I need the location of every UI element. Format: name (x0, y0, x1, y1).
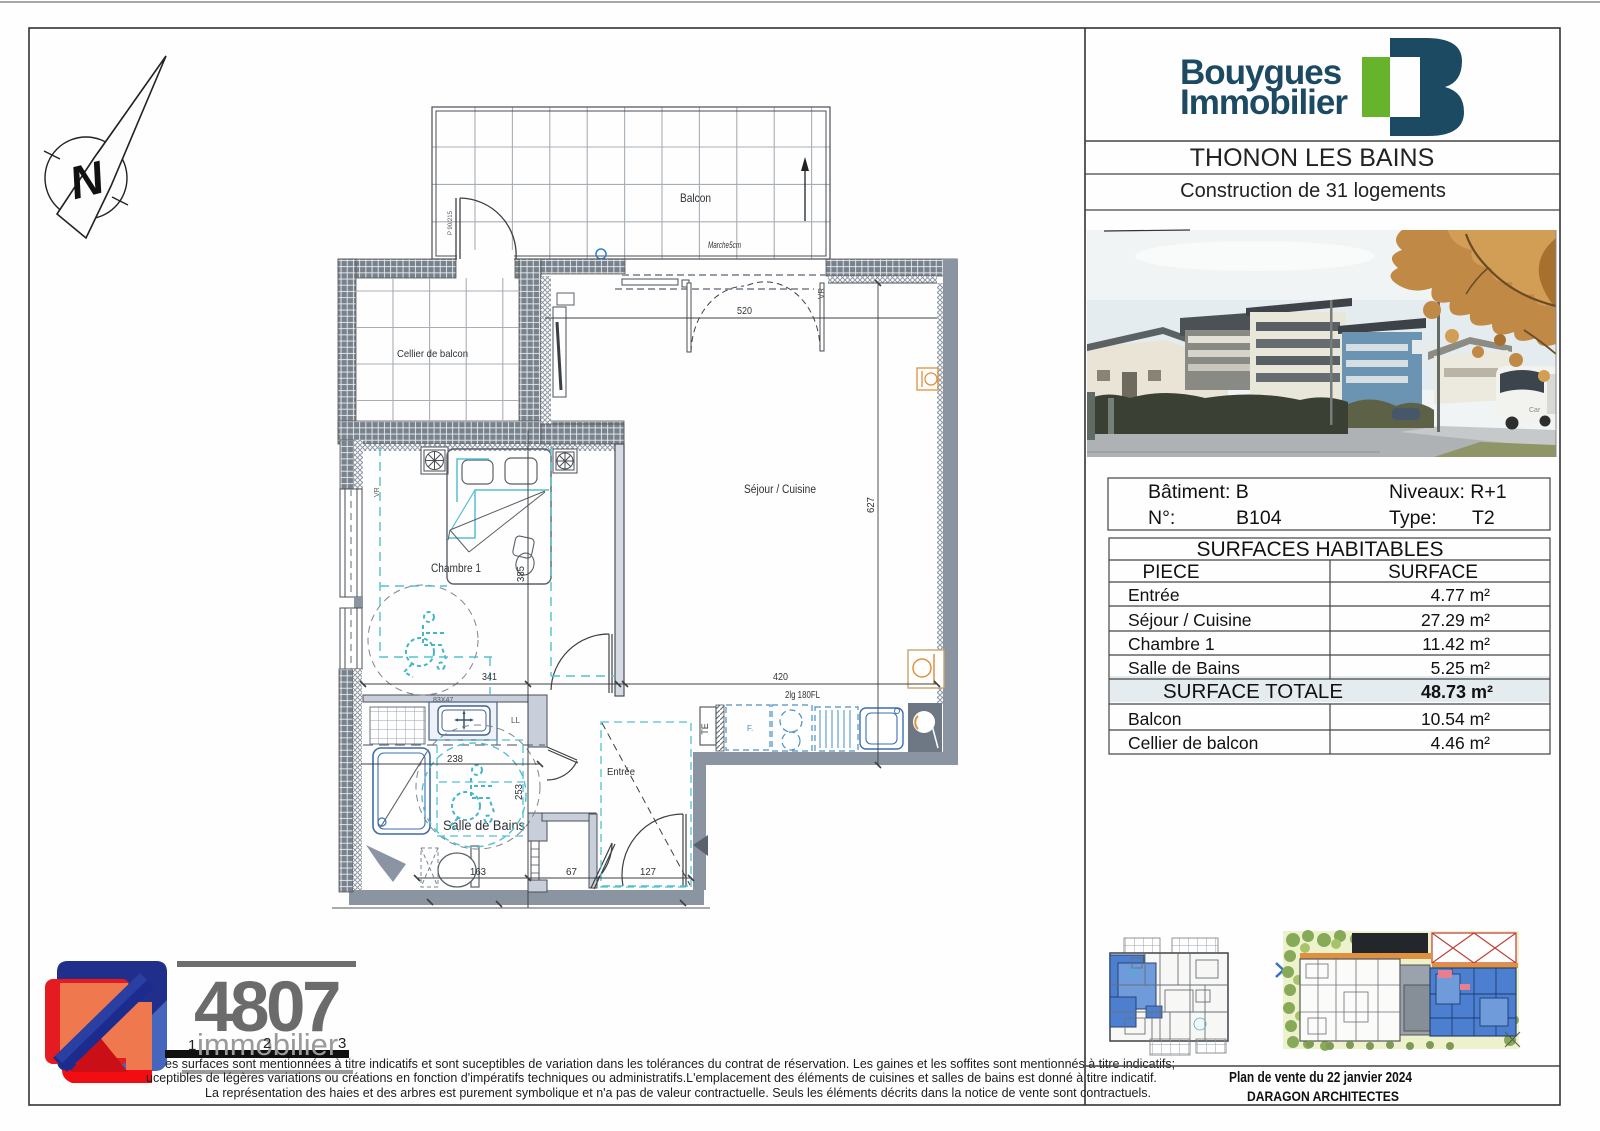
svg-text:127: 127 (640, 866, 656, 878)
svg-text:B104: B104 (1236, 507, 1282, 529)
svg-text:Chambre 1: Chambre 1 (1128, 634, 1215, 654)
svg-text:341: 341 (482, 671, 497, 683)
svg-text:385: 385 (515, 566, 527, 582)
svg-text:SURFACE TOTALE: SURFACE TOTALE (1163, 680, 1343, 703)
svg-text:48.73 m²: 48.73 m² (1421, 682, 1493, 702)
svg-text:10.54 m²: 10.54 m² (1421, 709, 1490, 729)
svg-text:4.46 m²: 4.46 m² (1431, 733, 1490, 753)
svg-text:P 90/215: P 90/215 (448, 210, 454, 235)
svg-text:VR: VR (817, 288, 826, 299)
svg-text:420: 420 (773, 671, 788, 683)
svg-text:3: 3 (338, 1035, 346, 1052)
svg-text:es surfaces sont mentionnées à: es surfaces sont mentionnées à titre ind… (165, 1057, 1175, 1071)
svg-text:4.77 m²: 4.77 m² (1431, 585, 1490, 605)
svg-text:67: 67 (566, 866, 577, 878)
svg-text:Cellier de balcon: Cellier de balcon (1128, 733, 1258, 753)
svg-text:1: 1 (188, 1037, 196, 1054)
svg-text:Séjour / Cuisine: Séjour / Cuisine (744, 484, 816, 496)
svg-text:Car: Car (1529, 407, 1541, 414)
svg-text:N°:: N°: (1148, 507, 1175, 529)
svg-text:SURFACES HABITABLES: SURFACES HABITABLES (1196, 538, 1443, 561)
svg-text:PIECE: PIECE (1142, 562, 1199, 583)
svg-text:Bâtiment: B: Bâtiment: B (1148, 481, 1249, 503)
svg-text:253: 253 (513, 784, 525, 800)
svg-text:11.42 m²: 11.42 m² (1422, 634, 1490, 654)
svg-text:Balcon: Balcon (680, 191, 711, 205)
svg-text:Plan de vente du 22 janvier 20: Plan de vente du 22 janvier 2024 (1229, 1070, 1412, 1086)
svg-text:Type:: Type: (1389, 507, 1437, 529)
svg-text:5.25 m²: 5.25 m² (1431, 658, 1490, 678)
svg-text:Marche5cm: Marche5cm (708, 240, 741, 250)
svg-text:627: 627 (865, 497, 877, 513)
svg-text:Immobilier: Immobilier (1180, 83, 1348, 122)
svg-text:THONON LES BAINS: THONON LES BAINS (1190, 144, 1435, 172)
svg-text:TE: TE (700, 723, 710, 735)
svg-text:Séjour / Cuisine: Séjour / Cuisine (1128, 610, 1252, 630)
svg-text:Construction de 31 logements: Construction de 31 logements (1180, 180, 1446, 202)
svg-text:F.: F. (747, 724, 753, 733)
svg-text:27.29 m²: 27.29 m² (1421, 610, 1490, 630)
svg-text:Salle de Bains: Salle de Bains (1128, 658, 1240, 678)
svg-text:uceptibles de légères variatio: uceptibles de légères variations ou créa… (146, 1071, 1157, 1085)
svg-text:238: 238 (447, 753, 463, 765)
svg-text:Entrée: Entrée (607, 766, 635, 778)
svg-text:83X47: 83X47 (433, 697, 453, 704)
svg-text:Entrée: Entrée (1128, 585, 1180, 605)
svg-text:2: 2 (263, 1035, 271, 1052)
svg-text:La représentation des haies et: La représentation des haies et des arbre… (205, 1086, 1151, 1100)
svg-text:Niveaux: R+1: Niveaux: R+1 (1389, 481, 1507, 503)
svg-text:163: 163 (470, 866, 486, 878)
svg-text:DARAGON ARCHITECTES: DARAGON ARCHITECTES (1247, 1088, 1399, 1104)
svg-text:LL: LL (511, 716, 520, 725)
svg-text:Balcon: Balcon (1128, 709, 1182, 729)
svg-text:520: 520 (737, 305, 752, 317)
svg-text:SURFACE: SURFACE (1388, 562, 1478, 583)
svg-text:T2: T2 (1472, 507, 1495, 529)
svg-text:Chambre 1: Chambre 1 (431, 563, 481, 575)
svg-text:Cellier de balcon: Cellier de balcon (397, 348, 468, 360)
svg-text:2lg 180FL: 2lg 180FL (785, 689, 820, 701)
